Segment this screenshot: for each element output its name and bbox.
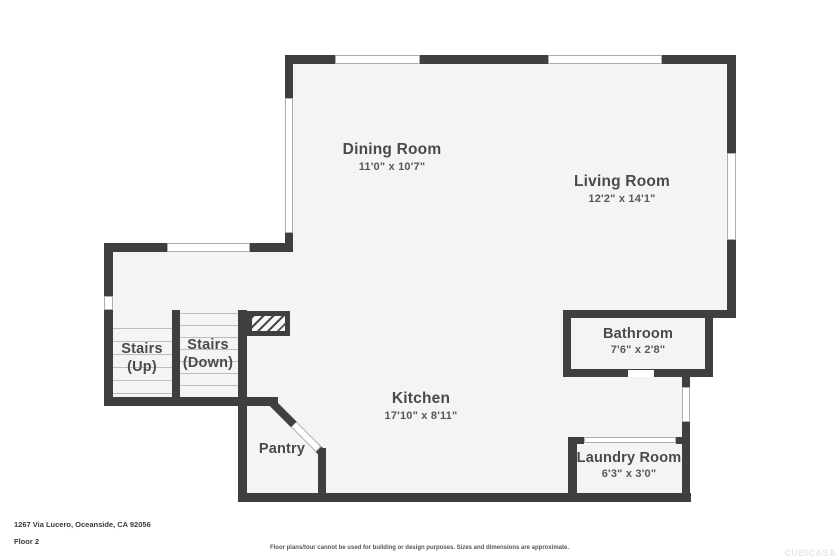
watermark-logo: CUBICASA: [784, 548, 836, 558]
window: [584, 437, 676, 443]
room-name: Pantry: [259, 441, 305, 457]
room-qualifier: (Up): [121, 358, 163, 376]
wall: [172, 310, 180, 406]
wall: [104, 243, 113, 406]
wall: [104, 397, 278, 406]
room-name: Stairs: [183, 336, 233, 354]
room-dimensions: 17'10" x 8'11": [385, 410, 458, 422]
window: [335, 55, 420, 64]
window: [727, 153, 736, 240]
bathroom-door: [628, 370, 654, 377]
room-name: Bathroom: [603, 326, 673, 342]
stair-step-line: [180, 385, 238, 386]
room-name: Dining Room: [343, 141, 442, 159]
room-label-stairs-up: Stairs (Up): [121, 340, 163, 376]
room-dimensions: 6'3" x 3'0": [577, 468, 682, 480]
stair-step-line: [180, 325, 238, 326]
stair-step-line: [113, 380, 172, 381]
room-dimensions: 12'2" x 14'1": [574, 193, 670, 205]
room-label-kitchen: Kitchen 17'10" x 8'11": [385, 390, 458, 422]
room-label-stairs-down: Stairs (Down): [183, 336, 233, 372]
room-label-pantry: Pantry: [259, 441, 305, 457]
room-label-bathroom: Bathroom 7'6" x 2'8": [603, 326, 673, 356]
room-name: Laundry Room: [577, 450, 682, 466]
window: [167, 243, 250, 252]
stair-step-line: [180, 373, 238, 374]
wall: [563, 310, 736, 318]
wall: [238, 310, 247, 502]
window: [682, 387, 690, 422]
stair-step-line: [113, 328, 172, 329]
room-label-living: Living Room 12'2" x 14'1": [574, 173, 670, 205]
floor-plan: Dining Room 11'0" x 10'7" Living Room 12…: [0, 0, 839, 560]
room-dimensions: 7'6" x 2'8": [603, 344, 673, 356]
stair-step-line: [180, 313, 238, 314]
room-name: Stairs: [121, 340, 163, 358]
wall: [563, 310, 571, 377]
wall: [705, 310, 713, 377]
room-name: Kitchen: [385, 390, 458, 408]
room-label-dining: Dining Room 11'0" x 10'7": [343, 141, 442, 173]
room-dimensions: 11'0" x 10'7": [343, 161, 442, 173]
hatched-shaft: [247, 311, 290, 336]
window: [548, 55, 662, 64]
wall: [238, 493, 691, 502]
room-qualifier: (Down): [183, 354, 233, 372]
disclaimer-text: Floor plans/tour cannot be used for buil…: [270, 545, 569, 551]
room-name: Living Room: [574, 173, 670, 191]
floor-number-label: Floor 2: [14, 537, 39, 546]
window: [285, 98, 293, 233]
stair-step-line: [113, 393, 172, 394]
property-address: 1267 Via Lucero, Oceanside, CA 92056: [14, 520, 151, 529]
window: [104, 296, 113, 310]
room-label-laundry: Laundry Room 6'3" x 3'0": [577, 450, 682, 480]
